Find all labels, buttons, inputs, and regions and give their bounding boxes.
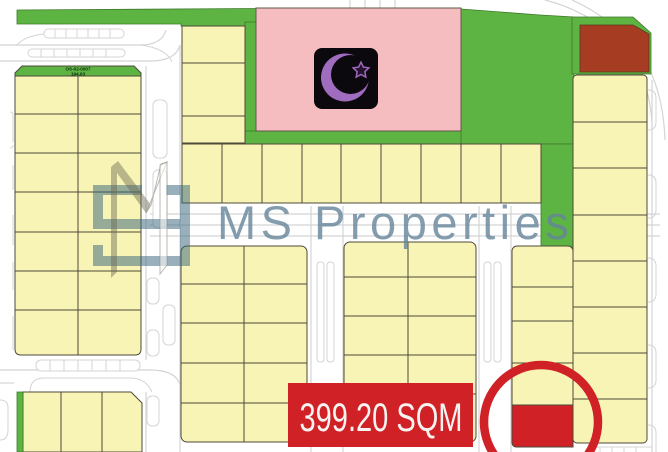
svg-text:194.03: 194.03 (71, 72, 85, 77)
svg-text:399.20 SQM: 399.20 SQM (300, 396, 463, 440)
svg-text:MS Properties: MS Properties (217, 196, 573, 249)
